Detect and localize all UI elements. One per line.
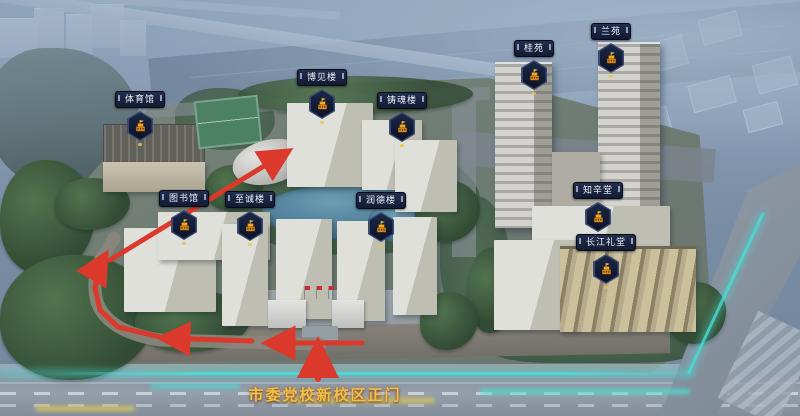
poi-layer: 体育馆 图书馆 [0, 0, 800, 416]
poi-ground-dot [379, 244, 383, 247]
poi-label: 知辛堂 [573, 182, 623, 199]
poi-ground-dot [604, 286, 608, 289]
poi-label: 至诚楼 [225, 191, 275, 208]
gold-building-glyph [590, 210, 605, 225]
poi-marker-bojian-building[interactable]: 博见楼 [297, 69, 347, 124]
gold-building-glyph [314, 97, 329, 112]
poi-marker-zhuhun-building[interactable]: 铸魂楼 [377, 92, 427, 147]
building-badge-icon [389, 112, 415, 142]
poi-label: 桂苑 [514, 40, 554, 57]
poi-label: 铸魂楼 [377, 92, 427, 109]
building-badge-inner [586, 204, 609, 231]
gold-building-glyph [394, 120, 409, 135]
poi-label: 兰苑 [591, 23, 631, 40]
building-badge-icon [593, 254, 619, 284]
building-badge-inner [599, 45, 622, 72]
poi-marker-zhicheng-building[interactable]: 至诚楼 [225, 191, 275, 246]
poi-ground-dot [609, 75, 613, 78]
poi-marker-zhixin-hall[interactable]: 知辛堂 [573, 182, 623, 237]
gold-building-glyph [598, 262, 613, 277]
poi-label: 图书馆 [159, 190, 209, 207]
gold-building-glyph [132, 119, 147, 134]
campus-map-scene: 体育馆 图书馆 [0, 0, 800, 416]
poi-marker-lan-yuan[interactable]: 兰苑 [591, 23, 631, 78]
building-badge-inner [128, 113, 151, 140]
poi-marker-library[interactable]: 图书馆 [159, 190, 209, 245]
building-badge-inner [522, 62, 545, 89]
building-badge-icon [598, 43, 624, 73]
poi-marker-gymnasium[interactable]: 体育馆 [115, 91, 165, 146]
poi-label: 长江礼堂 [576, 234, 636, 251]
building-badge-icon [585, 202, 611, 232]
gold-building-glyph [176, 218, 191, 233]
gold-building-glyph [373, 220, 388, 235]
poi-label: 体育馆 [115, 91, 165, 108]
poi-ground-dot [248, 243, 252, 246]
building-badge-icon [237, 211, 263, 241]
poi-ground-dot [400, 144, 404, 147]
building-badge-icon [309, 89, 335, 119]
poi-ground-dot [532, 92, 536, 95]
poi-marker-changjiang-auditorium[interactable]: 长江礼堂 [576, 234, 636, 289]
building-badge-icon [368, 212, 394, 242]
building-badge-inner [594, 256, 617, 283]
building-badge-inner [172, 212, 195, 239]
gold-building-glyph [242, 219, 257, 234]
poi-label: 博见楼 [297, 69, 347, 86]
poi-ground-dot [320, 121, 324, 124]
building-badge-icon [127, 111, 153, 141]
poi-marker-gui-yuan[interactable]: 桂苑 [514, 40, 554, 95]
gold-building-glyph [526, 68, 541, 83]
building-badge-inner [310, 91, 333, 118]
poi-ground-dot [138, 143, 142, 146]
poi-ground-dot [182, 242, 186, 245]
poi-label: 润德楼 [356, 192, 406, 209]
building-badge-inner [369, 214, 392, 241]
gate-name-label: 市委党校新校区正门 [248, 384, 401, 405]
poi-marker-runde-building[interactable]: 润德楼 [356, 192, 406, 247]
building-badge-inner [238, 213, 261, 240]
gold-building-glyph [603, 51, 618, 66]
building-badge-inner [390, 114, 413, 141]
building-badge-icon [171, 210, 197, 240]
building-badge-icon [521, 60, 547, 90]
